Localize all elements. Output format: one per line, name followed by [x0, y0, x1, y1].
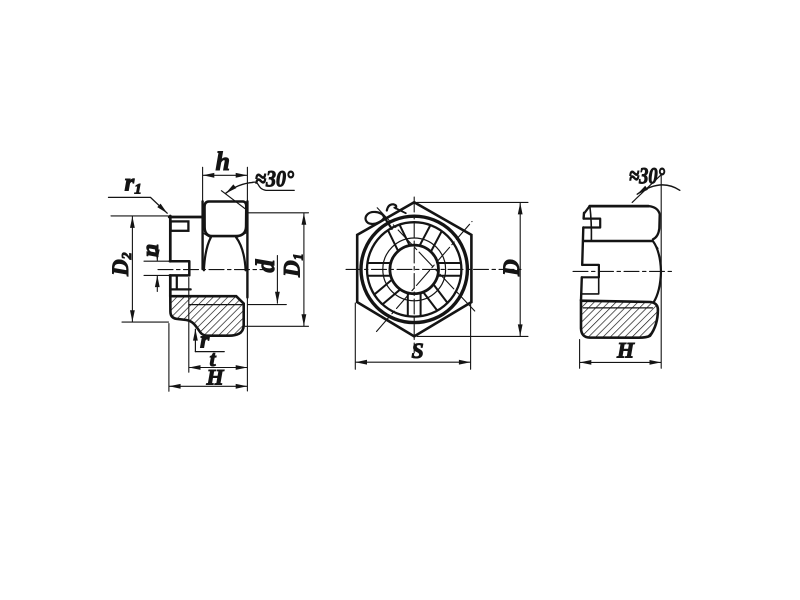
svg-text:d: d — [251, 259, 280, 273]
svg-text:D1: D1 — [280, 253, 307, 278]
svg-text:h: h — [216, 147, 230, 176]
svg-text:H: H — [616, 338, 635, 363]
svg-text:r1: r1 — [125, 170, 142, 198]
svg-text:S: S — [412, 338, 424, 363]
svg-text:r: r — [200, 328, 210, 354]
svg-text:n: n — [138, 244, 164, 257]
svg-text:H: H — [206, 365, 225, 390]
svg-text:D: D — [499, 259, 524, 277]
svg-text:D2: D2 — [108, 252, 135, 277]
